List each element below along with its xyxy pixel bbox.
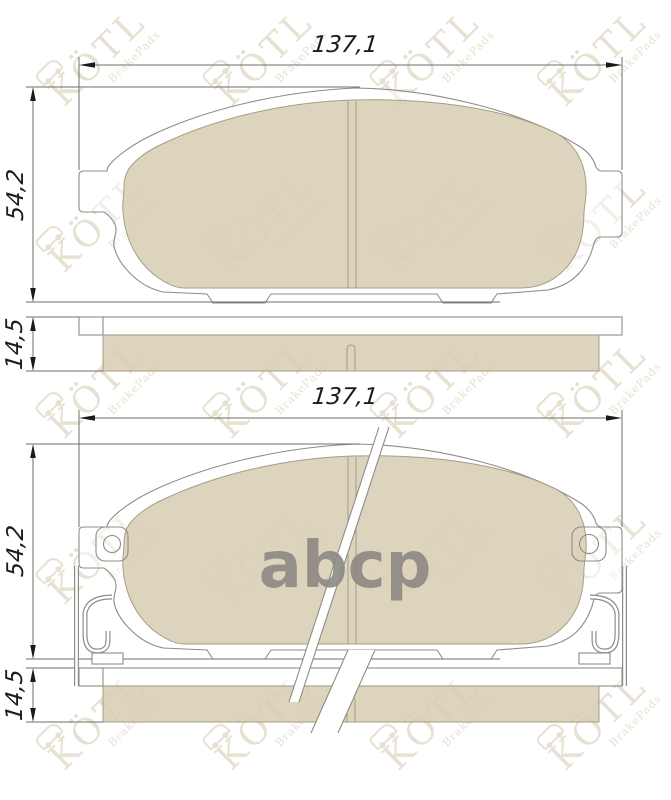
- dimension-label-thickness-top: 14,5: [2, 317, 28, 371]
- dimension-label-height-top: 54,2: [3, 168, 29, 222]
- side-view-backing-plate: [79, 317, 622, 335]
- dimension-label-height-bottom: 54,2: [3, 524, 29, 578]
- arrow-right-icon: [606, 415, 622, 421]
- figure-top-pad: [26, 57, 622, 371]
- abcp-logo: abcp: [259, 534, 432, 598]
- arrow-up-icon: [30, 317, 36, 331]
- arrow-down-icon: [30, 645, 36, 659]
- sensor-tab-right: [579, 653, 610, 664]
- arrow-left-icon: [79, 415, 95, 421]
- arrow-right-icon: [606, 62, 622, 68]
- sensor-hook-right-inner: [590, 597, 617, 651]
- sensor-tab-left: [92, 653, 123, 664]
- arrow-down-icon: [30, 357, 36, 371]
- arrow-down-icon: [30, 288, 36, 302]
- dimension-label-width-top: 137,1: [311, 32, 380, 58]
- side-view: [26, 317, 622, 371]
- dimension-label-thickness-bottom: 14,5: [2, 668, 28, 722]
- dimension-label-width-bottom: 137,1: [311, 384, 380, 410]
- sensor-hook-left-inner: [85, 597, 112, 651]
- arrow-left-icon: [79, 62, 95, 68]
- brake-pad-technical-drawing: KÖTL BrakePads KÖTL BrakePads KÖTL Brake…: [0, 0, 671, 800]
- side-view-friction: [103, 335, 599, 371]
- arrow-up-icon: [30, 444, 36, 458]
- arrow-up-icon: [30, 87, 36, 101]
